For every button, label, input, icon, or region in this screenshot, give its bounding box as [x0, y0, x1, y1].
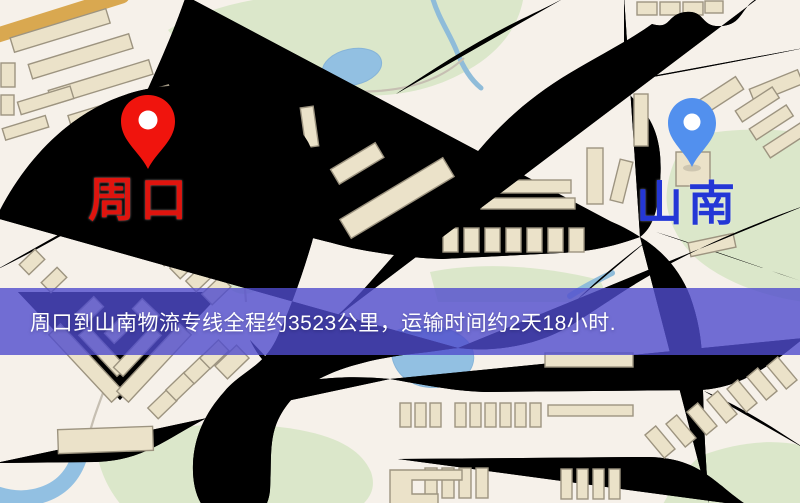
map-screenshot: 周口到山南物流专线全程约3523公里，运输时间约2天18小时. 周口 山南	[0, 0, 800, 503]
origin-label: 周口	[88, 176, 192, 223]
route-info-text: 周口到山南物流专线全程约3523公里，运输时间约2天18小时.	[30, 307, 616, 337]
destination-label: 山南	[636, 180, 740, 227]
map-canvas	[0, 0, 800, 503]
route-info-banner: 周口到山南物流专线全程约3523公里，运输时间约2天18小时.	[0, 288, 800, 355]
